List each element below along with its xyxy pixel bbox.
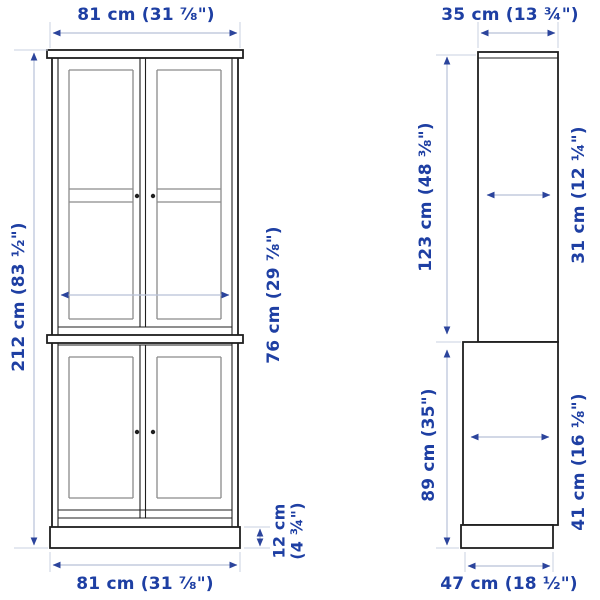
door-knob	[151, 430, 155, 434]
front-view-cabinet	[47, 50, 243, 548]
door-knob	[135, 194, 139, 198]
dim-label-side-upper-height: 123 cm (48 ⅜")	[416, 122, 436, 271]
dim-label-front-plinth-height-line1: 12 cm	[271, 502, 289, 559]
door-knob	[151, 194, 155, 198]
front-plinth	[50, 527, 240, 548]
dim-label-side-base-depth: 47 cm (18 ½")	[440, 574, 577, 594]
dim-label-front-width-bottom: 81 cm (31 ⅞")	[76, 574, 213, 594]
front-top-panel	[47, 50, 243, 58]
dim-label-side-lower-interior-depth: 41 cm (16 ⅛")	[569, 393, 589, 530]
dim-label-front-plinth-height-line2: (4 ¾")	[289, 502, 307, 559]
side-upper-section	[478, 52, 558, 342]
dim-label-side-lower-height: 89 cm (35")	[419, 388, 439, 502]
side-lower-section	[463, 342, 558, 525]
dim-label-front-width-top: 81 cm (31 ⅞")	[77, 5, 214, 25]
dim-label-front-plinth-height: 12 cm (4 ¾")	[271, 502, 308, 559]
dim-label-side-upper-interior-depth: 31 cm (12 ¼")	[569, 126, 589, 263]
front-mid-panel	[47, 335, 243, 343]
side-plinth	[461, 525, 553, 548]
cabinet-dimension-diagram: 81 cm (31 ⅞") 35 cm (13 ¾") 212 cm (83 ½…	[0, 0, 600, 600]
dim-label-side-depth-top: 35 cm (13 ¾")	[441, 5, 578, 25]
side-view-cabinet	[461, 52, 558, 548]
dim-label-front-interior-width: 76 cm (29 ⅞")	[264, 226, 284, 363]
door-knob	[135, 430, 139, 434]
dim-label-front-overall-height: 212 cm (83 ½")	[9, 222, 29, 371]
